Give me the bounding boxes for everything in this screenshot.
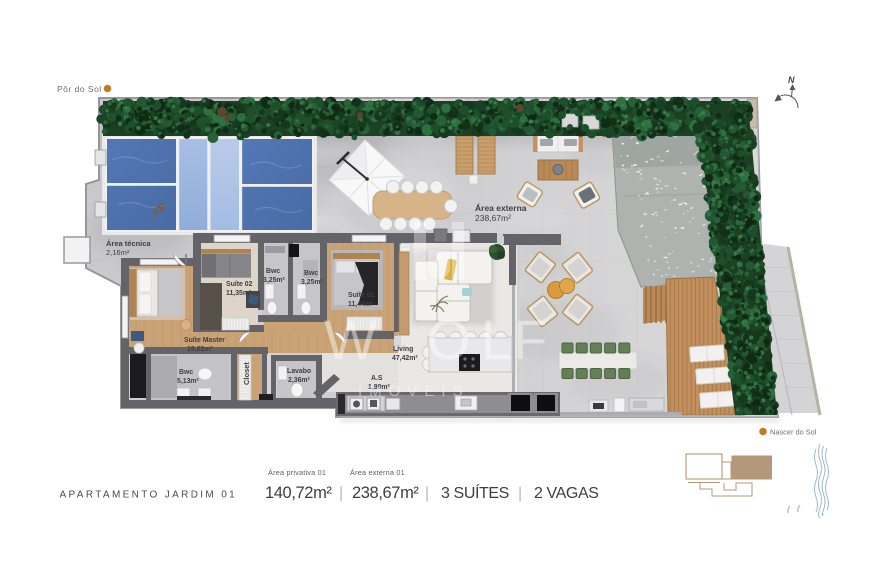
svg-text:11,35m²: 11,35m² xyxy=(226,290,252,297)
svg-text:|: | xyxy=(339,485,343,502)
svg-text:11,44m²: 11,44m² xyxy=(348,301,374,308)
svg-text:238,67m²: 238,67m² xyxy=(475,213,511,223)
svg-text:Nascer do Sol: Nascer do Sol xyxy=(770,428,817,437)
svg-text:Área técnica: Área técnica xyxy=(106,239,151,248)
svg-text:APARTAMENTO JARDIM 01: APARTAMENTO JARDIM 01 xyxy=(60,490,238,501)
svg-text:Lavabo: Lavabo xyxy=(287,368,311,375)
svg-text:Suíte 01: Suíte 01 xyxy=(348,292,375,299)
svg-text:3,25m²: 3,25m² xyxy=(301,279,324,286)
svg-text:2,36m²: 2,36m² xyxy=(288,377,311,384)
svg-text:3,25m²: 3,25m² xyxy=(263,277,286,284)
svg-text:IMÓVEIS: IMÓVEIS xyxy=(358,383,470,400)
svg-text:Closet: Closet xyxy=(242,362,251,385)
svg-text:2,16m²: 2,16m² xyxy=(106,248,130,257)
svg-text:Bwc: Bwc xyxy=(179,369,193,376)
svg-text:Área externa: Área externa xyxy=(475,203,527,213)
svg-text:F: F xyxy=(513,308,547,371)
svg-text:Bwc: Bwc xyxy=(266,268,280,275)
svg-text:Área externa 01: Área externa 01 xyxy=(350,468,405,477)
svg-text:19,02m²: 19,02m² xyxy=(187,346,213,353)
svg-text:A.S: A.S xyxy=(371,375,383,382)
svg-text:|: | xyxy=(425,485,429,502)
svg-text:L: L xyxy=(481,308,512,371)
svg-text:2 VAGAS: 2 VAGAS xyxy=(534,485,599,502)
svg-text:Área privativa 01: Área privativa 01 xyxy=(268,468,326,477)
svg-text:N: N xyxy=(788,75,795,85)
svg-text:Pôr do Sol: Pôr do Sol xyxy=(57,84,102,94)
svg-text:Bwc: Bwc xyxy=(304,270,318,277)
svg-text:W: W xyxy=(324,308,377,371)
svg-text:Living: Living xyxy=(393,346,413,353)
svg-text:|: | xyxy=(518,485,522,502)
svg-text:Suíte 02: Suíte 02 xyxy=(226,281,253,288)
svg-text:238,67m²: 238,67m² xyxy=(352,484,419,502)
svg-text:140,72m²: 140,72m² xyxy=(265,484,332,502)
svg-text:3 SUÍTES: 3 SUÍTES xyxy=(441,483,509,502)
svg-text:47,42m²: 47,42m² xyxy=(392,355,418,362)
svg-text:O: O xyxy=(427,308,471,371)
svg-text:5,13m²: 5,13m² xyxy=(177,378,200,385)
svg-text:Suíte Master: Suíte Master xyxy=(184,337,225,344)
